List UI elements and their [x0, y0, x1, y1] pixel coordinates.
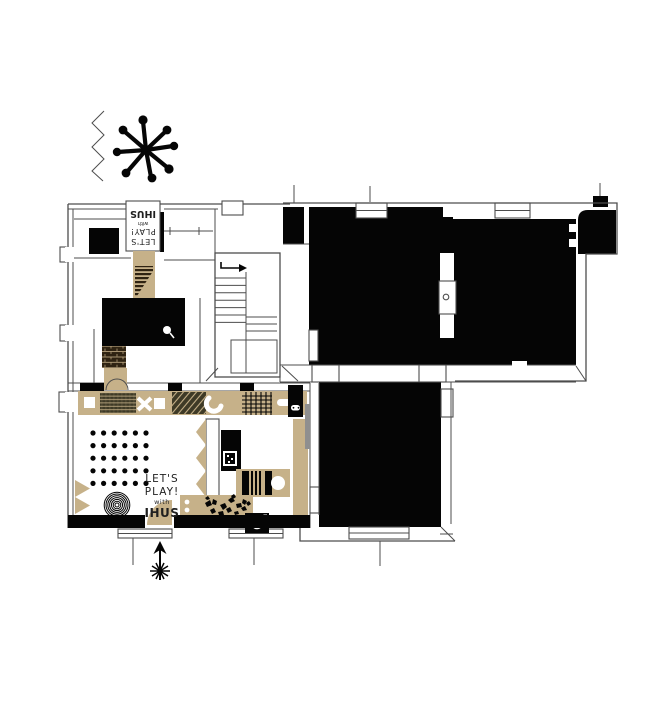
- entrance-arrow-icon: [150, 541, 170, 580]
- zigzag-line: [92, 111, 104, 181]
- door-leaf: [305, 404, 310, 449]
- bench: [236, 469, 290, 497]
- striped-mat: [172, 392, 206, 414]
- svg-text:IHUS: IHUS: [130, 208, 156, 219]
- spiral-rug: [104, 492, 130, 518]
- svg-text:with: with: [154, 498, 170, 506]
- game-controller-icon: [288, 385, 303, 417]
- porch: [222, 201, 243, 215]
- chimney-ticks: [294, 183, 600, 203]
- svg-text:with: with: [138, 220, 149, 226]
- black-rooms: [160, 196, 616, 527]
- svg-text:LET'S: LET'S: [131, 237, 156, 246]
- floor-plan-page: LET'S PLAY! with IHUS LET'S PLAY! with I…: [0, 0, 655, 702]
- stairs: [215, 262, 277, 373]
- stair-direction-arrow-icon: [221, 262, 247, 272]
- brand-text: LET'S PLAY! with IHUS: [145, 473, 180, 520]
- svg-text:IHUS: IHUS: [145, 506, 180, 520]
- partition-with-teeth: [196, 419, 219, 497]
- kitchen-block: [221, 430, 241, 471]
- brick-texture: [102, 346, 126, 368]
- svg-text:PLAY!: PLAY!: [145, 486, 179, 498]
- annex-room: [578, 210, 616, 254]
- svg-text:LET'S: LET'S: [145, 473, 178, 485]
- svg-text:PLAY!: PLAY!: [130, 227, 155, 236]
- wall-teeth-left: [75, 480, 90, 514]
- sputnik-star-icon: [113, 115, 178, 182]
- chimney-cap: [593, 196, 608, 207]
- window-marker: [164, 227, 213, 235]
- shelf-grid: [242, 392, 272, 415]
- dot-grid-rug: [90, 430, 148, 486]
- woven-mat: [100, 393, 136, 413]
- floor-plan-drawing: LET'S PLAY! with IHUS LET'S PLAY! with I…: [0, 0, 655, 702]
